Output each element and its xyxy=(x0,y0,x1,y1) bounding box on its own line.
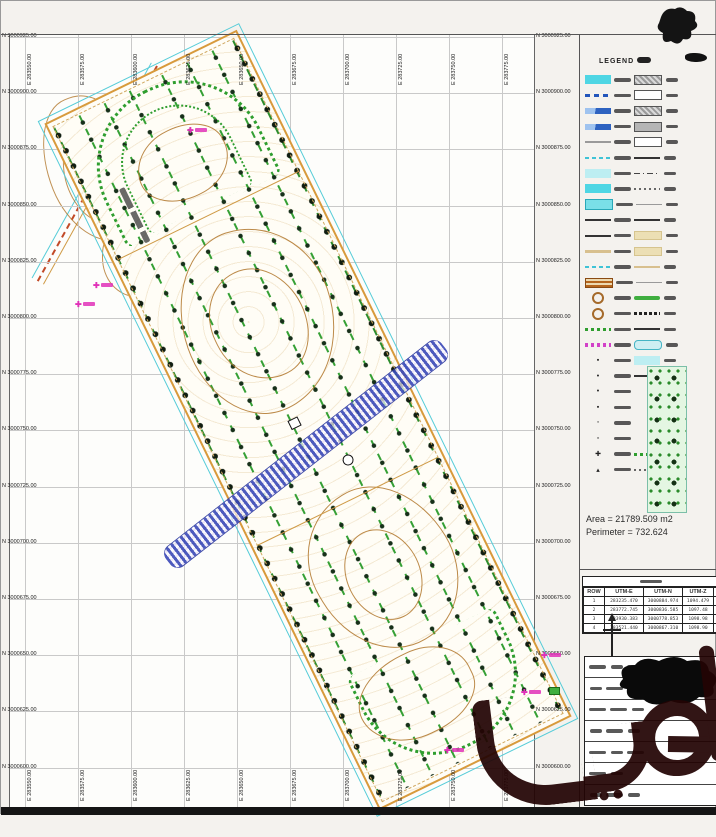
utm-cell: 3000884.974 xyxy=(644,597,683,606)
benchmark-label-illegible xyxy=(529,690,541,694)
northing-label-left: N 3000675.00 xyxy=(2,595,56,601)
perimeter-value: Perimeter = 732.624 xyxy=(586,526,673,539)
minaret-pole xyxy=(611,619,613,657)
legend-item-row xyxy=(585,150,716,166)
legend-item-row xyxy=(585,197,716,213)
legend-label-illegible xyxy=(614,312,631,316)
benchmark-cross-icon: ✚ xyxy=(444,747,451,755)
legend-label-illegible xyxy=(614,343,631,347)
legend-label-illegible xyxy=(614,359,631,363)
legend-label-illegible xyxy=(664,218,676,222)
legend-symbol-swatch xyxy=(634,122,662,132)
legend-panel-divider xyxy=(579,34,580,807)
legend-symbol-swatch xyxy=(585,343,611,347)
legend-symbol-swatch xyxy=(585,157,611,159)
title-block-row xyxy=(585,721,716,742)
region-map-thumbnail xyxy=(651,5,703,54)
legend-label-illegible xyxy=(614,468,631,472)
easting-label-top: E 283725.00 xyxy=(398,54,404,85)
utm-cell: 1097.48 xyxy=(683,606,714,615)
utm-cell: 283235.470 xyxy=(605,597,644,606)
easting-label-bottom: E 283700.00 xyxy=(345,770,351,801)
legend-symbol-swatch xyxy=(634,75,662,85)
legend-symbol-swatch xyxy=(585,278,613,288)
contour-line xyxy=(192,252,326,396)
benchmark-label-illegible xyxy=(195,128,207,132)
legend-item-row xyxy=(585,228,716,244)
easting-label-bottom: E 283550.00 xyxy=(27,770,33,801)
utm-cell: 1098.90 xyxy=(683,624,714,633)
legend-symbol-swatch xyxy=(585,184,611,193)
legend-label-illegible xyxy=(614,109,631,113)
utm-header-utm-e: UTM-E xyxy=(605,588,644,597)
utm-header-row: ROW xyxy=(584,588,605,597)
utm-cell: 3000867.310 xyxy=(644,624,683,633)
legend-label-illegible xyxy=(664,312,676,316)
northing-label-left: N 3000775.00 xyxy=(2,370,56,376)
northing-label-left: N 3000600.00 xyxy=(2,764,56,770)
legend-item-row xyxy=(585,181,716,197)
legend-symbol-swatch: ▪ xyxy=(585,403,611,412)
sheet-top-rule xyxy=(1,34,716,35)
legend-item-row xyxy=(585,259,716,275)
legend-item-row xyxy=(585,337,716,353)
northing-label-left: N 3000875.00 xyxy=(2,145,56,151)
benchmark-marker: ✚ xyxy=(93,282,105,292)
contour-line xyxy=(125,110,241,216)
legend-label-illegible xyxy=(614,328,631,332)
easting-label-top: E 283550.00 xyxy=(27,54,33,85)
legend-label-illegible xyxy=(666,109,678,113)
easting-label-bottom: E 283725.00 xyxy=(398,770,404,801)
easting-label-bottom: E 283650.00 xyxy=(239,770,245,801)
coordinates-table-title xyxy=(583,577,716,587)
easting-label-bottom: E 283750.00 xyxy=(451,770,457,801)
northing-label-right: N 3000600.00 xyxy=(536,764,590,770)
legend-symbol-swatch xyxy=(634,312,660,315)
northing-label-left: N 3000825.00 xyxy=(2,258,56,264)
benchmark-cross-icon: ✚ xyxy=(187,127,194,135)
legend-label-illegible xyxy=(614,250,631,254)
legend-label-illegible xyxy=(664,187,676,191)
legend-symbol-blob xyxy=(637,57,651,63)
easting-label-top: E 283625.00 xyxy=(186,54,192,85)
legend-symbol-swatch xyxy=(585,294,611,303)
table-separator xyxy=(579,569,716,570)
legend-symbol-swatch xyxy=(585,75,611,84)
legend-symbol-swatch xyxy=(585,141,611,143)
green-sample-chip xyxy=(549,687,560,695)
tree-row-loop-top-inner xyxy=(101,85,253,235)
easting-label-top: E 283675.00 xyxy=(292,54,298,85)
legend-label-illegible xyxy=(614,374,631,378)
legend-symbol-swatch: ✚ xyxy=(585,450,611,459)
utm-cell: 1098.98 xyxy=(683,615,714,624)
legend-symbol-swatch: • xyxy=(585,372,611,381)
easting-label-top: E 283650.00 xyxy=(239,54,245,85)
legend-symbol-swatch xyxy=(634,219,660,221)
legend-label-illegible xyxy=(666,281,678,285)
illegible-farsi-title xyxy=(640,580,662,583)
utm-cell: 3000836.585 xyxy=(644,606,683,615)
legend-label-illegible xyxy=(664,328,676,332)
legend-symbol-swatch xyxy=(634,266,660,269)
legend-panel: LEGEND ▪••▪◦▫✚▴ xyxy=(581,36,716,566)
title-block-row xyxy=(585,785,716,805)
benchmark-marker: ✚ xyxy=(521,689,533,699)
legend-symbol-swatch xyxy=(634,157,660,159)
legend-label-illegible xyxy=(664,296,676,300)
legend-label-illegible xyxy=(614,390,631,394)
legend-title: LEGEND xyxy=(599,58,634,65)
legend-symbol-swatch xyxy=(634,173,660,175)
benchmark-marker: ✚ xyxy=(541,652,553,662)
legend-label-illegible xyxy=(664,265,676,269)
benchmark-cross-icon: ✚ xyxy=(521,689,528,697)
legend-symbol-swatch xyxy=(634,328,660,330)
legend-label-illegible xyxy=(614,452,631,456)
utm-table-header: ROWUTM-EUTM-NUTM-Z xyxy=(584,588,716,597)
internal-boundary xyxy=(117,171,299,260)
legend-symbol-swatch: • xyxy=(585,387,611,396)
legend-symbol-swatch xyxy=(634,137,662,147)
area-value: Area = 21789.509 m2 xyxy=(586,513,673,526)
legend-symbol-swatch xyxy=(634,340,662,350)
legend-symbol-swatch xyxy=(585,328,611,331)
legend-symbol-swatch xyxy=(634,188,660,190)
northing-label-left: N 3000625.00 xyxy=(2,707,56,713)
minaret-arm xyxy=(603,629,621,631)
benchmark-cross-icon: ✚ xyxy=(75,301,82,309)
legend-symbol-swatch xyxy=(585,309,611,318)
legend-item-row xyxy=(585,306,716,322)
benchmark-label-illegible xyxy=(452,748,464,752)
legend-symbol-swatch xyxy=(634,231,662,240)
legend-label-illegible xyxy=(616,203,633,207)
minaret-icon xyxy=(599,613,625,657)
legend-label-illegible xyxy=(666,125,678,129)
benchmark-cross-icon: ✚ xyxy=(93,282,100,290)
legend-symbol-swatch xyxy=(585,169,611,178)
utm-cell: 1094.479 xyxy=(683,597,714,606)
northing-label-left: N 3000900.00 xyxy=(2,89,56,95)
legend-label-illegible xyxy=(614,187,631,191)
legend-item-row xyxy=(585,244,716,260)
legend-item-row xyxy=(585,72,716,88)
legend-label-illegible xyxy=(666,234,678,238)
area-perimeter-stats: Area = 21789.509 m2 Perimeter = 732.624 xyxy=(586,513,673,539)
legend-symbol-swatch xyxy=(585,108,611,114)
utm-header-utm-z: UTM-Z xyxy=(683,588,714,597)
legend-label-illegible xyxy=(614,296,631,300)
utm-cell: 3000778.853 xyxy=(644,615,683,624)
legend-item-row xyxy=(585,88,716,104)
easting-label-top: E 283775.00 xyxy=(504,54,510,85)
legend-symbol-swatch xyxy=(634,90,662,100)
legend-label-illegible xyxy=(664,172,676,176)
easting-label-top: E 283600.00 xyxy=(133,54,139,85)
benchmark-label-illegible xyxy=(101,283,113,287)
legend-symbol-swatch: ▪ xyxy=(585,356,611,365)
site-annotation-text xyxy=(119,187,151,244)
title-block-row xyxy=(585,742,716,763)
legend-symbol-swatch xyxy=(636,282,662,284)
northing-label-left: N 3000750.00 xyxy=(2,426,56,432)
easting-label-top: E 283575.00 xyxy=(80,54,86,85)
easting-label-bottom: E 283775.00 xyxy=(504,770,510,801)
legend-label-illegible xyxy=(666,250,678,254)
legend-label-illegible xyxy=(614,140,631,144)
legend-symbol-swatch xyxy=(585,250,611,253)
easting-label-bottom: E 283675.00 xyxy=(292,770,298,801)
legend-symbol-swatch xyxy=(634,247,662,256)
benchmark-marker: ✚ xyxy=(187,127,199,137)
utm-cell: 1 xyxy=(584,597,605,606)
building-symbol xyxy=(287,416,301,430)
legend-label-illegible xyxy=(614,78,631,82)
legend-symbol-swatch: ▫ xyxy=(585,434,611,443)
legend-symbol-swatch xyxy=(585,124,611,130)
legend-item-row xyxy=(585,212,716,228)
legend-label-illegible xyxy=(666,140,678,144)
benchmark-cross-icon: ✚ xyxy=(541,652,548,660)
legend-symbol-swatch: ◦ xyxy=(585,418,611,427)
legend-symbol-swatch xyxy=(585,235,611,237)
title-block-row xyxy=(585,763,716,784)
contour-line xyxy=(156,207,361,433)
legend-label-illegible xyxy=(614,437,631,441)
redaction-blob xyxy=(609,653,716,716)
benchmark-label-illegible xyxy=(549,653,561,657)
legend-symbol-swatch xyxy=(636,204,662,206)
legend-symbol-swatch xyxy=(585,94,611,97)
easting-label-bottom: E 283575.00 xyxy=(80,770,86,801)
legend-item-row xyxy=(585,166,716,182)
legend-label-illegible xyxy=(614,125,631,129)
legend-item-row xyxy=(585,275,716,291)
contour-line xyxy=(344,630,489,758)
legend-item-row xyxy=(585,119,716,135)
legend-label-illegible xyxy=(614,156,631,160)
northing-label-left: N 3000850.00 xyxy=(2,202,56,208)
easting-label-bottom: E 283600.00 xyxy=(133,770,139,801)
orchard-sample-strip xyxy=(647,366,687,513)
benchmark-marker: ✚ xyxy=(75,301,87,311)
legend-label-illegible xyxy=(664,359,676,363)
well-symbol xyxy=(341,453,356,468)
grid-northing-line xyxy=(10,37,534,38)
legend-item-row xyxy=(585,134,716,150)
legend-label-illegible xyxy=(666,203,678,207)
legend-label-illegible xyxy=(666,94,678,98)
legend-label-illegible xyxy=(614,94,631,98)
legend-item-row xyxy=(585,290,716,306)
legend-item-row xyxy=(585,103,716,119)
legend-label-illegible xyxy=(614,172,631,176)
legend-symbol-swatch xyxy=(585,199,613,210)
benchmark-label-illegible xyxy=(83,302,95,306)
legend-label-illegible xyxy=(664,156,676,160)
utm-header-utm-n: UTM-N xyxy=(644,588,683,597)
legend-label-illegible xyxy=(666,78,678,82)
legend-label-illegible xyxy=(666,343,678,347)
northing-label-left: N 3000650.00 xyxy=(2,651,56,657)
northing-label-right: N 3000625.00 xyxy=(536,707,590,713)
legend-symbol-swatch xyxy=(634,356,660,365)
legend-label-illegible xyxy=(614,218,631,222)
legend-label-illegible xyxy=(614,234,631,238)
legend-label-illegible xyxy=(616,281,633,285)
northing-label-left: N 3000800.00 xyxy=(2,314,56,320)
contour-line xyxy=(280,460,486,675)
legend-label-illegible xyxy=(614,421,631,425)
benchmark-marker: ✚ xyxy=(444,747,456,757)
northing-label-left: N 3000725.00 xyxy=(2,483,56,489)
legend-label-illegible xyxy=(614,406,631,410)
legend-label-illegible xyxy=(614,265,631,269)
easting-label-top: E 283700.00 xyxy=(345,54,351,85)
legend-symbol-swatch xyxy=(634,296,660,300)
contour-line xyxy=(330,516,438,633)
legend-item-row xyxy=(585,322,716,338)
northing-label-left: N 3000700.00 xyxy=(2,539,56,545)
drawing-sheet: N 3000925.00N 3000925.00N 3000900.00N 30… xyxy=(0,0,716,814)
legend-symbol-swatch xyxy=(585,219,611,221)
legend-symbol-swatch xyxy=(634,106,662,116)
legend-symbol-swatch xyxy=(585,266,611,268)
utm-table-row: 1283235.4703000884.9741094.479 xyxy=(584,597,716,606)
legend-symbol-swatch: ▴ xyxy=(585,465,611,474)
legend-symbol-blob xyxy=(685,53,707,62)
easting-label-bottom: E 283625.00 xyxy=(186,770,192,801)
easting-label-top: E 283750.00 xyxy=(451,54,457,85)
